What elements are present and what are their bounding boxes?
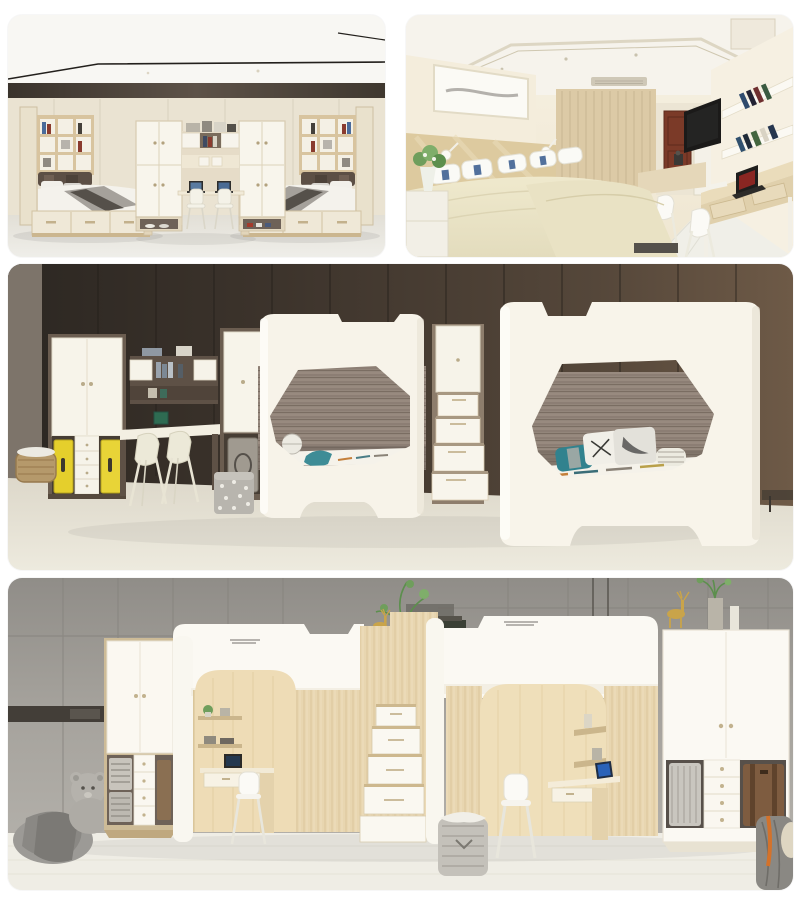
corner-bag [756,816,793,890]
photo-frame [154,412,168,424]
photo-panel-bottom[interactable] [8,578,793,890]
photo-panel-top-right[interactable] [406,15,793,257]
brown-suitcase [157,760,171,820]
knit-basket [438,812,488,876]
photo-panel-top-left[interactable] [8,15,385,257]
capsule-bed-left [258,314,426,518]
wardrobe-left [104,638,176,838]
striped-roll [656,448,686,466]
wardrobe-right [239,121,285,231]
central-stairs [360,612,444,844]
polka-dot-stool [214,472,254,514]
capsule-bed-right [500,302,760,546]
wicker-basket [16,447,56,482]
candle [730,606,739,630]
silver-suitcase [669,763,701,826]
photo-panel-middle[interactable] [8,264,793,570]
wardrobe-with-suitcases [48,334,126,499]
stairs-drawers [432,324,488,504]
loft-bed-left [173,624,365,844]
bed-frame-end [634,243,678,253]
pillow-grey [613,427,657,466]
wardrobe-left [136,121,182,231]
furniture-photo-collage: { "collage": { "background": "#ffffff", … [0,0,800,906]
orange-strap [768,816,770,866]
tablet [595,761,613,779]
kettle [674,154,683,165]
folded-suitcase [109,758,132,822]
